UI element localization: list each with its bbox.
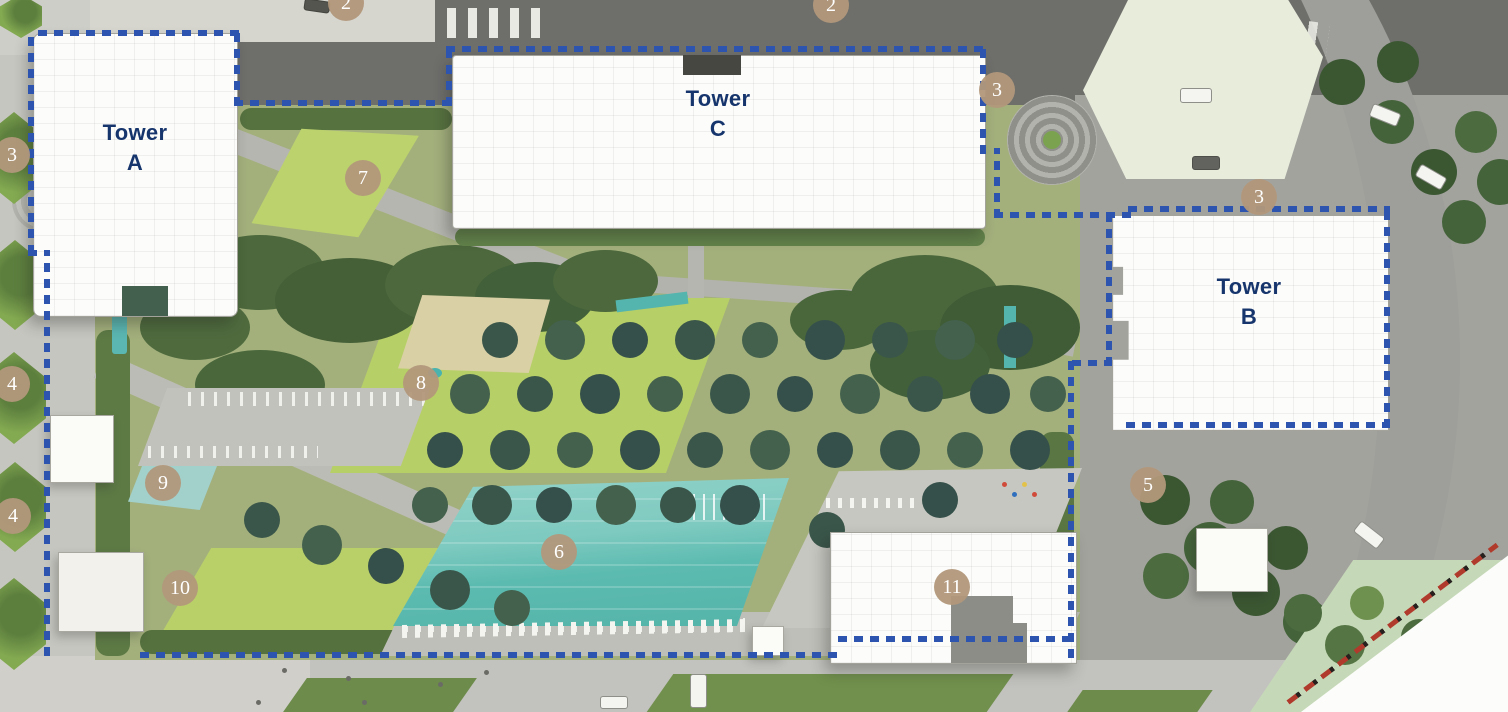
hedge-below-tower-c	[455, 228, 985, 246]
boundary-segment	[1072, 360, 1112, 366]
marker-11-number: 11	[942, 576, 961, 599]
site-plan: Tower A Tower C Tower B	[0, 0, 1508, 712]
marker-5-number: 5	[1143, 474, 1153, 497]
boundary-segment	[1126, 422, 1388, 428]
car	[1180, 88, 1212, 103]
marker-4-number: 4	[8, 505, 18, 528]
small-building	[58, 552, 144, 632]
tower-b-label-letter: B	[1182, 302, 1316, 332]
tower-b-label: Tower B	[1182, 272, 1316, 332]
crosswalk-top	[447, 8, 549, 38]
marker-3-number: 3	[992, 79, 1002, 102]
boundary-segment	[140, 652, 842, 658]
small-building	[50, 415, 114, 483]
tower-c-label-word: Tower	[648, 84, 788, 114]
tower-b-label-word: Tower	[1182, 272, 1316, 302]
boundary-segment	[28, 30, 34, 254]
boundary-segment	[994, 212, 1134, 218]
road-median-planting	[283, 678, 477, 712]
tower-a-garden-notch	[122, 286, 168, 316]
van	[690, 674, 707, 708]
parking-area-left	[138, 388, 430, 466]
car	[600, 696, 628, 709]
boundary-segment	[234, 30, 240, 106]
car	[1192, 156, 1220, 170]
hedge-top	[240, 108, 452, 130]
boundary-segment	[234, 100, 452, 106]
roundabout-center-planting	[1043, 131, 1061, 149]
building-11-court	[1001, 623, 1027, 663]
boundary-segment	[446, 46, 986, 52]
pool-lap-markers	[683, 494, 773, 520]
sports-court-8	[398, 295, 550, 373]
tree-mass	[790, 290, 890, 350]
marker-10: 10	[162, 570, 198, 606]
small-building	[1196, 528, 1268, 592]
marker-3: 3	[979, 72, 1015, 108]
marker-2-number: 2	[341, 0, 351, 15]
marker-9: 9	[145, 465, 181, 501]
marker-3-number: 3	[7, 144, 17, 167]
marker-3: 3	[1241, 179, 1277, 215]
marker-2-number: 2	[826, 0, 836, 17]
marker-10-number: 10	[170, 577, 190, 600]
water-feature-east	[1004, 306, 1016, 368]
boundary-segment	[1384, 206, 1390, 428]
boundary-segment	[838, 636, 1072, 642]
marker-6-number: 6	[554, 541, 564, 564]
marker-9-number: 9	[158, 472, 168, 495]
boundary-segment	[446, 52, 452, 106]
tower-c-label-letter: C	[648, 114, 788, 144]
tower-c-core-notch	[683, 55, 741, 75]
road-median-planting	[1067, 690, 1212, 712]
marker-6: 6	[541, 534, 577, 570]
parking-stripes	[188, 392, 438, 406]
boundary-segment	[38, 30, 240, 36]
plaza-bottom-left	[0, 656, 310, 712]
marker-8-number: 8	[416, 372, 426, 395]
tower-a-label: Tower A	[68, 118, 202, 178]
boundary-segment	[1106, 212, 1112, 366]
verge-tree-row	[0, 0, 30, 30]
marker-7-number: 7	[358, 167, 368, 190]
boundary-segment	[994, 148, 1000, 218]
marker-8: 8	[403, 365, 439, 401]
tree-mass	[870, 330, 990, 400]
marker-3-number: 3	[1254, 186, 1264, 209]
tower-a-label-letter: A	[68, 148, 202, 178]
tower-a-label-word: Tower	[68, 118, 202, 148]
boundary-segment	[1068, 360, 1074, 658]
boundary-segment	[44, 252, 50, 656]
marker-11: 11	[934, 569, 970, 605]
marker-4-number: 4	[7, 373, 17, 396]
marker-5: 5	[1130, 467, 1166, 503]
tower-c-label: Tower C	[648, 84, 788, 144]
parking-stripes	[148, 446, 318, 458]
marker-7: 7	[345, 160, 381, 196]
